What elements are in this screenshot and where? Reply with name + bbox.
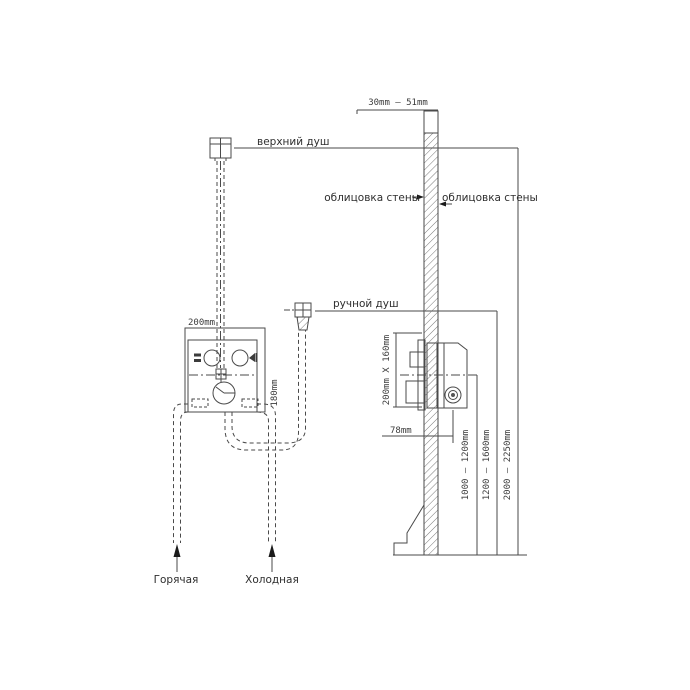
mixer-width-dim: 200mm xyxy=(188,318,215,328)
shower-installation-drawing: верхний душ ручной душ облицовка стены о… xyxy=(0,0,690,690)
rough-in-size-dim: 200mm X 160mm xyxy=(382,335,392,405)
mixer-mount-height-dim: 1000 – 1200mm xyxy=(461,430,471,500)
hand-shower-glyph-icon xyxy=(194,354,201,363)
hot-pipe xyxy=(174,404,189,543)
mount-tab-right xyxy=(242,399,258,407)
wall-section xyxy=(424,111,438,555)
tray-step-profile xyxy=(394,505,424,555)
top-shower-label: верхний душ xyxy=(257,136,329,148)
right-knob xyxy=(232,350,248,366)
cold-supply-label: Холодная xyxy=(245,574,299,586)
mount-tab-left xyxy=(192,399,208,407)
wall-thickness-dim: 30mm – 51mm xyxy=(368,98,428,108)
top-shower-mount-height-dim: 2000 – 2250mm xyxy=(503,430,513,500)
cold-arrow-icon xyxy=(269,544,276,572)
hot-arrow-icon xyxy=(174,544,181,572)
left-knob xyxy=(204,350,220,366)
center-valve xyxy=(216,369,226,379)
hand-shower-fitting-icon xyxy=(284,303,311,330)
side-view xyxy=(357,110,527,555)
hand-shower-label: ручной душ xyxy=(333,298,399,310)
hot-supply-label: Горячая xyxy=(154,574,199,586)
wall-cladding-right-label: облицовка стены xyxy=(442,192,538,204)
mixer-depth-dim: 78mm xyxy=(390,426,412,436)
mixer-height-dim: 180mm xyxy=(270,379,280,406)
mixer-front-plate xyxy=(188,340,257,412)
cold-pipe xyxy=(257,404,276,543)
hand-shower-mount-height-dim: 1200 – 1600mm xyxy=(482,430,492,500)
installation-diagram: верхний душ ручной душ облицовка стены о… xyxy=(0,0,690,690)
overhead-shower-icon xyxy=(210,138,231,161)
top-shower-glyph-icon xyxy=(249,353,258,362)
diverter-knob xyxy=(213,379,235,404)
wall-cladding-left-label: облицовка стены xyxy=(324,192,420,204)
